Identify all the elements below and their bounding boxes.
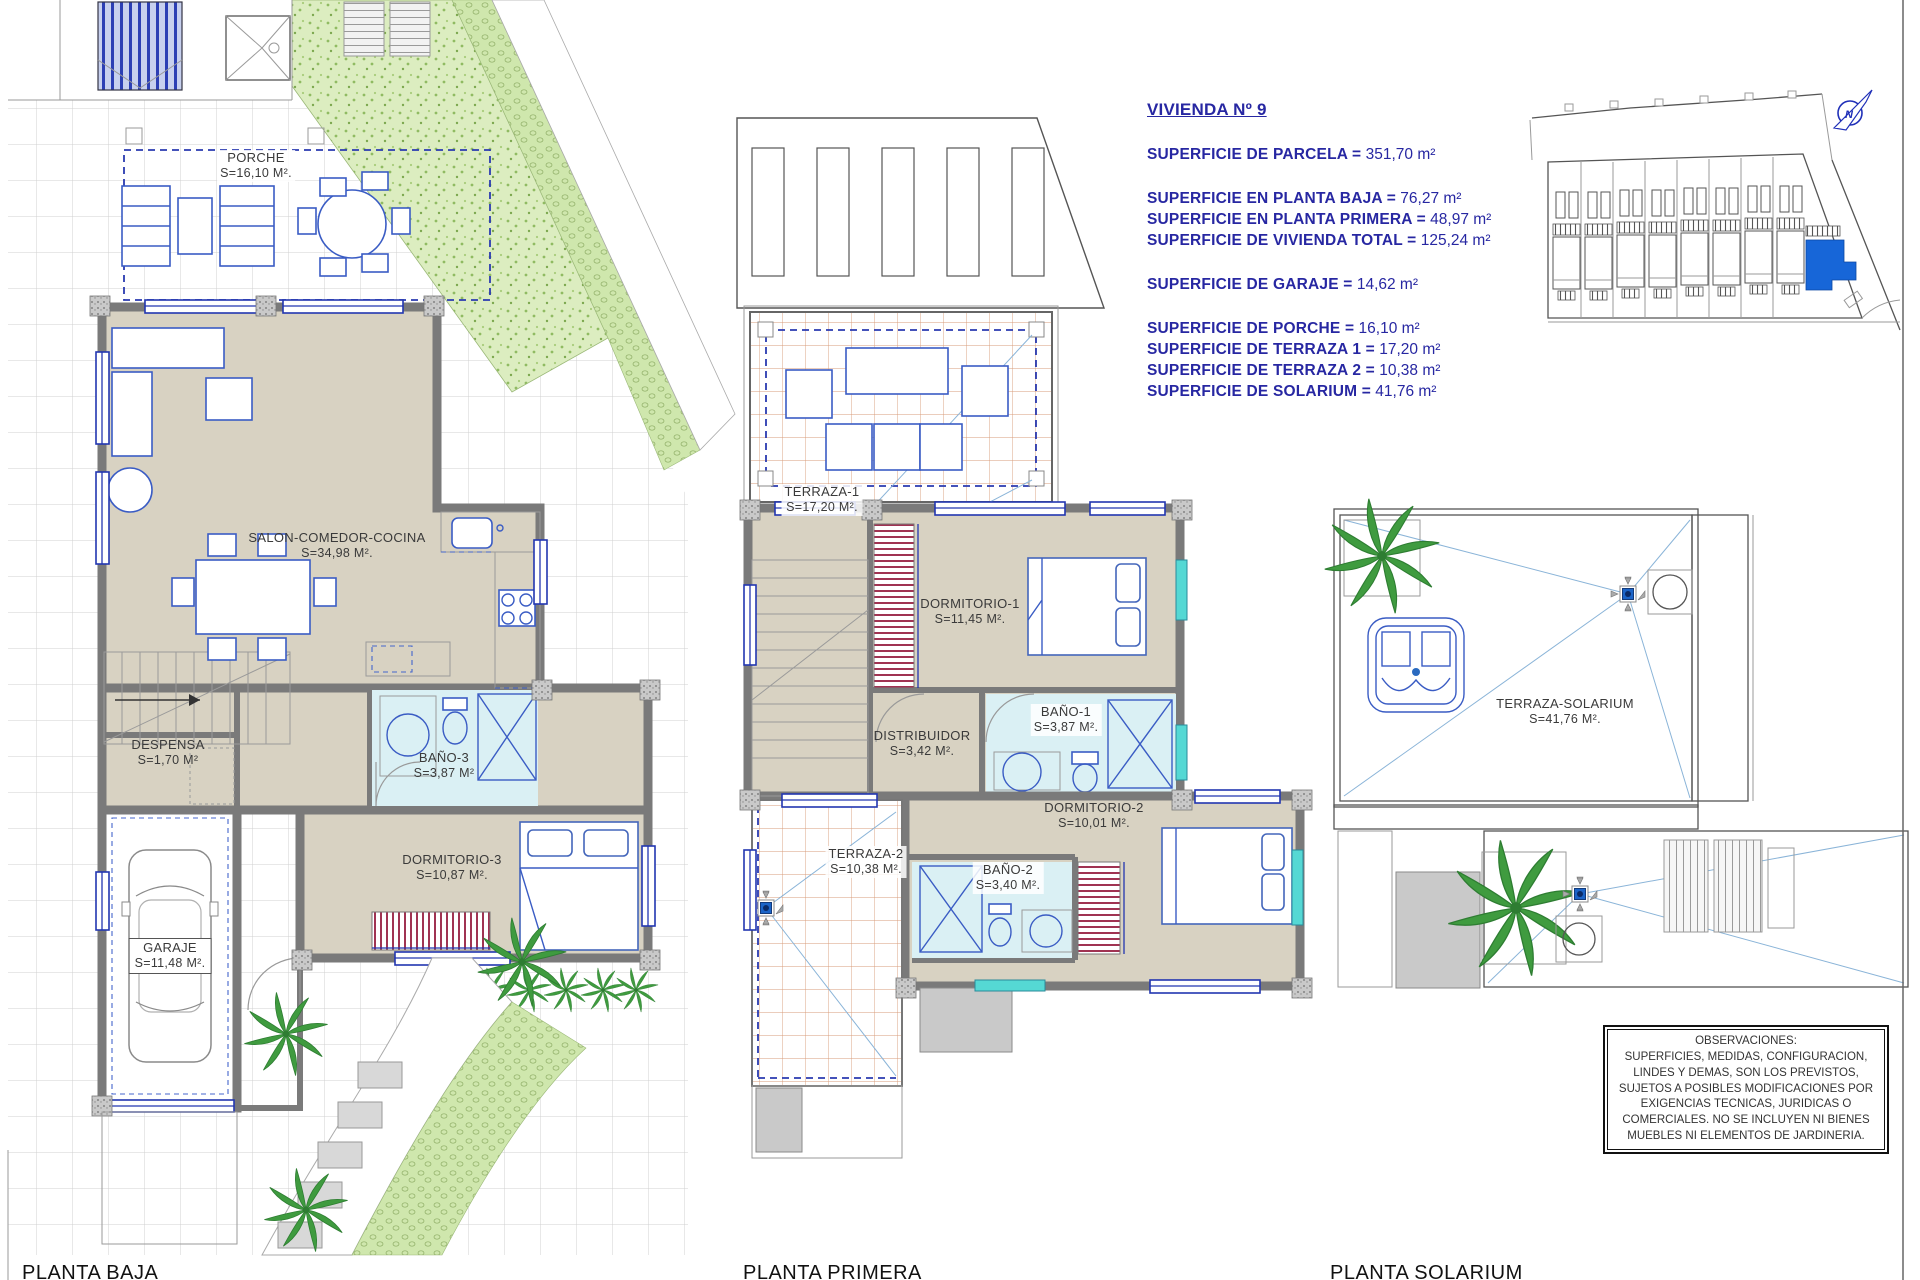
terraza-2 <box>749 800 902 1086</box>
area-line: SUPERFICIE DE GARAJE = 14,62 m² <box>1147 276 1567 294</box>
caption-planta-solarium: PLANTA SOLARIUM <box>1330 1262 1523 1280</box>
area-line: SUPERFICIE DE TERRAZA 1 = 17,20 m² <box>1147 341 1567 359</box>
solarium-table <box>1648 570 1692 614</box>
north-compass-icon: N <box>1834 90 1872 130</box>
car-icon <box>1844 291 1862 308</box>
room-label-salon: SALON-COMEDOR-COCINA S=34,98 M². <box>248 530 425 562</box>
pool <box>98 2 182 90</box>
planta-baja-plan <box>8 0 735 1255</box>
room-label-despensa: DESPENSA S=1,70 M² <box>131 737 204 769</box>
room-label-terraza2: TERRAZA-2 S=10,38 M². <box>826 846 907 878</box>
unit9-highlight <box>1806 240 1856 290</box>
site-fence-posts <box>1565 91 1796 111</box>
walkway <box>1334 805 1698 829</box>
observations-text: OBSERVACIONES: SUPERFICIES, MEDIDAS, CON… <box>1607 1029 1885 1150</box>
dwelling-title: VIVIENDA Nº 9 <box>1147 100 1567 120</box>
bed-dorm2 <box>1162 828 1292 924</box>
room-label-terraza1: TERRAZA-1 S=17,20 M². <box>782 484 863 516</box>
closet-dorm1 <box>874 524 914 688</box>
stairwell-roof <box>1396 872 1480 988</box>
closet-dorm2 <box>1078 862 1120 954</box>
pergola-roof <box>737 118 1104 308</box>
bathroom-3 <box>372 690 538 806</box>
room-label-dormitorio3: DORMITORIO-3 S=10,87 M². <box>402 852 501 884</box>
drawing-sheet: N PORCHE S=16,10 M². SALON-COMEDOR-COCIN… <box>0 0 1920 1280</box>
area-line: SUPERFICIE DE SOLARIUM = 41,76 m² <box>1147 383 1567 401</box>
area-line: SUPERFICIE DE PARCELA = 351,70 m² <box>1147 146 1567 164</box>
room-label-dormitorio1: DORMITORIO-1 S=11,45 M². <box>920 596 1019 628</box>
room-label-bano2: BAÑO-2 S=3,40 M². <box>973 862 1044 894</box>
area-line: SUPERFICIE EN PLANTA PRIMERA = 48,97 m² <box>1147 211 1567 229</box>
green-grid-strip <box>1338 831 1392 987</box>
caption-planta-baja: PLANTA BAJA <box>22 1262 158 1280</box>
site-location-plan: N <box>1530 90 1900 330</box>
room-label-terraza-solarium: TERRAZA-SOLARIUM S=41,76 M². <box>1493 696 1637 728</box>
bed-dorm1 <box>1028 558 1146 655</box>
room-label-porche: PORCHE S=16,10 M². <box>217 150 295 182</box>
title-block: VIVIENDA Nº 9 SUPERFICIE DE PARCELA = 35… <box>1147 100 1567 401</box>
room-label-bano3: BAÑO-3 S=3,87 M² <box>414 750 475 782</box>
porch-sofa <box>122 186 274 266</box>
drain-icon <box>1611 577 1645 611</box>
north-label: N <box>1845 109 1854 121</box>
jacuzzi <box>1368 618 1464 712</box>
room-label-bano1: BAÑO-1 S=3,87 M². <box>1031 704 1102 736</box>
roof-patch <box>756 1088 802 1152</box>
area-line: SUPERFICIE DE PORCHE = 16,10 m² <box>1147 320 1567 338</box>
observations-box: OBSERVACIONES: SUPERFICIES, MEDIDAS, CON… <box>1603 1025 1889 1154</box>
room-label-dormitorio2: DORMITORIO-2 S=10,01 M². <box>1044 800 1143 832</box>
solarium-table <box>1556 916 1602 962</box>
area-line: SUPERFICIE DE VIVIENDA TOTAL = 125,24 m² <box>1147 232 1567 250</box>
room-label-distribuidor: DISTRIBUIDOR S=3,42 M². <box>874 728 971 760</box>
closet-dorm3 <box>372 912 490 950</box>
area-line: SUPERFICIE DE TERRAZA 2 = 10,38 m² <box>1147 362 1567 380</box>
roof-patch <box>920 988 1012 1052</box>
caption-planta-primera: PLANTA PRIMERA <box>743 1262 922 1280</box>
room-label-garaje: GARAJE S=11,48 M². <box>129 938 212 974</box>
area-line: SUPERFICIE EN PLANTA BAJA = 76,27 m² <box>1147 190 1567 208</box>
solarium-loungers <box>1664 840 1794 932</box>
planta-solarium-plan <box>1325 499 1908 988</box>
